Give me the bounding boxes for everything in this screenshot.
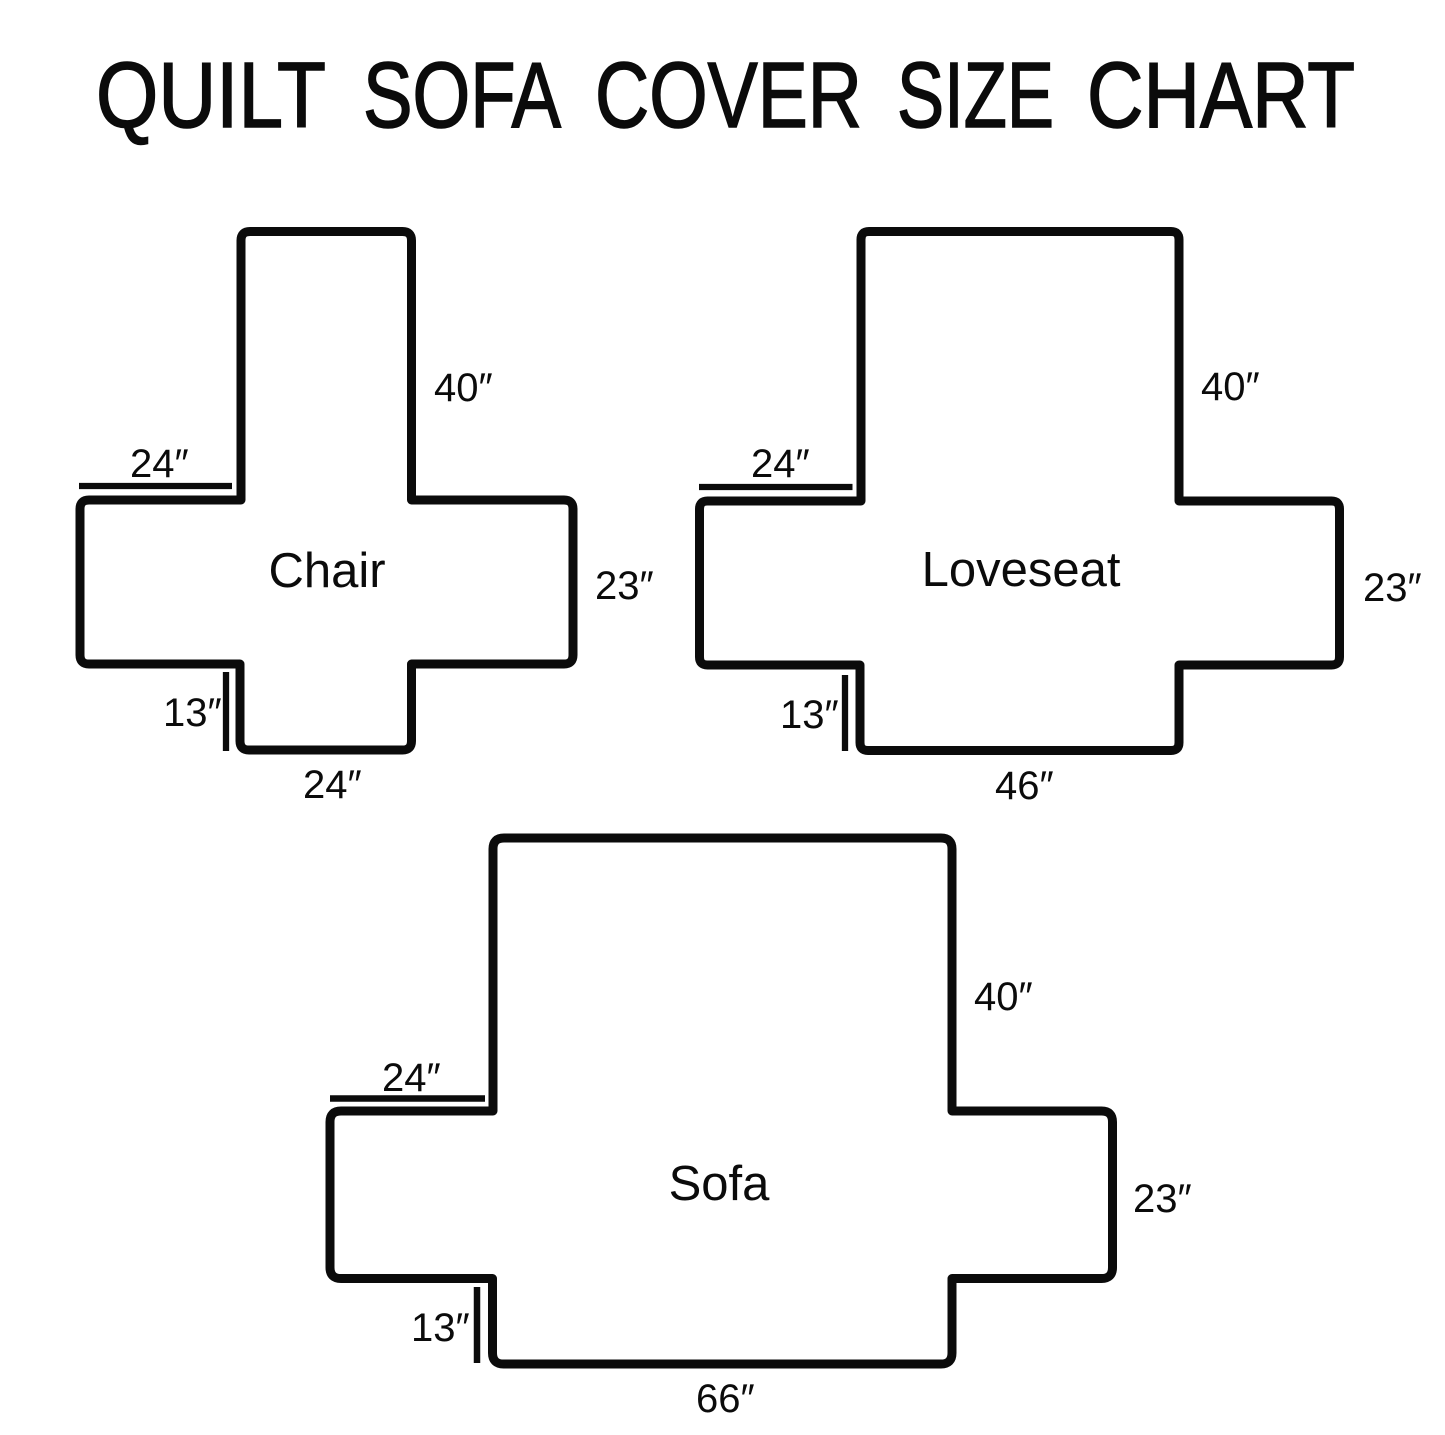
svg-text:46″: 46″ [995,764,1054,808]
svg-text:13″: 13″ [780,693,839,737]
svg-text:13″: 13″ [163,691,222,735]
svg-text:SIZE: SIZE [897,43,1054,147]
svg-text:13″: 13″ [411,1306,470,1350]
svg-text:24″: 24″ [751,442,810,486]
svg-text:40″: 40″ [1201,365,1260,409]
svg-text:COVER: COVER [595,43,862,147]
svg-text:SOFA: SOFA [363,43,561,147]
svg-text:40″: 40″ [434,366,493,410]
svg-text:23″: 23″ [1133,1177,1192,1221]
svg-text:Loveseat: Loveseat [922,543,1121,597]
svg-text:CHART: CHART [1087,43,1355,147]
svg-text:23″: 23″ [595,564,654,608]
svg-text:24″: 24″ [303,763,362,807]
svg-text:40″: 40″ [974,975,1033,1019]
svg-text:24″: 24″ [130,442,189,486]
svg-text:66″: 66″ [696,1377,755,1421]
svg-text:QUILT: QUILT [96,43,326,147]
svg-text:Sofa: Sofa [669,1157,771,1211]
svg-text:23″: 23″ [1363,566,1422,610]
svg-text:24″: 24″ [382,1056,441,1100]
svg-text:Chair: Chair [268,544,385,598]
